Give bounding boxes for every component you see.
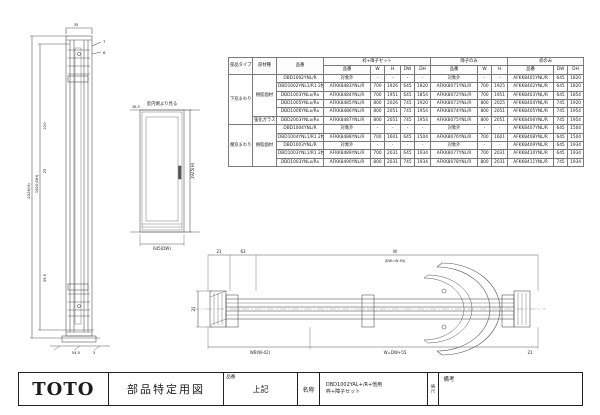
table-cell: AFKK8486YNL/R [324,108,371,116]
dim-label: W [393,249,397,254]
table-cell: AFKK8403YNL/R [508,91,554,99]
table-row: DBD1004YNL1/R1 2枚AFKK8488YNL/R7001601645… [229,133,584,141]
scale-cell: 縮尺 [428,373,440,405]
table-cell: - [415,125,431,133]
table-row: DBD1003YNL/R対象外----対象外--AFKK8409YNL/R645… [229,142,584,150]
dim-label: 1820(DH) [34,174,39,193]
table-cell: 樹脂面材 [253,74,277,116]
table-cell: 1951 [492,91,508,99]
table-row: 下窓まわり樹脂面材DBD1002YNL/R対象外----対象外--AFKK840… [229,74,584,82]
table-cell: 1954 [415,108,431,116]
table-cell: AFKK8073YNL/R [431,100,478,108]
table-cell: 800 [371,100,385,108]
subheader: DW [401,66,415,74]
biko-label: 備考 [443,375,454,383]
table-cell: 645 [554,150,568,158]
table-cell: 700 [371,133,385,141]
table-cell: AFKK8411YNL/R [508,158,554,166]
horizontal-section-drawing: 21 63 W (DW=W-55) WB(W-42) W=DW+55 21 21 [190,245,550,370]
table-cell: 1820 [568,74,584,82]
table-cell: AFKK8485YNL/R [324,100,371,108]
table-cell: 1934 [568,142,584,150]
table-cell: DBD1006YNLx/Rx [277,108,324,116]
table-cell: AFKK8401YNL/R [508,74,554,82]
table-cell: AFKK8408YNL/R [508,133,554,141]
table-cell: 1925 [492,83,508,91]
table-row: 強化ガラスDBD2003YNLx/RxAFKK8487YNL/R80020517… [229,116,584,124]
dim-label: 21 [216,249,222,254]
table-cell: 1934 [568,150,584,158]
table-cell: 対象外 [324,74,371,82]
toto-logo: TOTO [19,373,109,405]
table-cell: 1954 [568,116,584,124]
table-cell: 1504 [415,133,431,141]
table-cell: 800 [371,158,385,166]
table-cell: 対象外 [431,125,478,133]
dim-label: 25 [42,168,47,173]
table-cell: 645 [554,133,568,141]
table-cell: 745 [554,158,568,166]
dim-label: WB(W-42) [250,350,271,355]
table-cell: AFKK8484YNL/R [324,91,371,99]
table-cell: 1954 [568,108,584,116]
table-cell: AFKK8075YNL/R [431,116,478,124]
dim-label: (DW=W-55) [385,259,406,263]
table-cell: 1601 [385,133,401,141]
table-header-row: 部品タイプ 部材種 品番 枠+障子セット 障子のみ 枠のみ [229,58,584,66]
table-cell: 700 [371,91,385,99]
table-cell: AFKK8074YNL/R [431,108,478,116]
table-cell: 745 [401,116,415,124]
table-cell: - [492,125,508,133]
dim-label: 35 [74,22,79,27]
table-cell: 1926 [385,83,401,91]
table-cell: 2051 [385,116,401,124]
table-cell: 対象外 [324,125,371,133]
table-cell: 700 [478,150,492,158]
subheader: 品番 [431,66,478,74]
table-cell: - [401,142,415,150]
table-cell: 800 [478,100,492,108]
table-cell: AFKK8490YNL/R [324,158,371,166]
table-cell: 745 [554,116,568,124]
table-cell: 700 [478,133,492,141]
dim-label: 2026(H) [26,183,31,199]
table-cell: 対象外 [431,142,478,150]
table-cell: 800 [478,116,492,124]
table-cell: 1601 [492,133,508,141]
table-cell: AFKK8071YNL/R [431,83,478,91]
table-cell: 2051 [492,116,508,124]
table-cell: 2025 [492,100,508,108]
table-cell: - [492,142,508,150]
table-row: 腰窓まわり樹脂面材DBD1004YNL/R対象外----対象外--AFKK840… [229,125,584,133]
table-cell: 1954 [415,116,431,124]
document-type-title: 部品特定用図 [109,373,225,405]
table-cell: 対象外 [431,74,478,82]
table-cell: AFKK8405YNL/R [508,108,554,116]
meisho-value: DBD1002YAL+/R+他用 枠+障子セット [320,373,428,405]
table-cell: AFKK8489YNL/R [324,150,371,158]
table-cell: - [371,142,385,150]
subheader: 品番 [324,66,371,74]
table-cell: 腰窓まわり [229,125,253,167]
table-cell: - [401,125,415,133]
drawing-sheet: 35 7 8 220 25 39.5 54.5 3 2026(H) 1820(D… [0,0,600,415]
table-cell: 1504 [568,133,584,141]
dim-label: 54.5 [72,350,81,355]
table-cell: 700 [478,91,492,99]
dim-label: W=DW+55 [384,350,407,355]
table-cell: 800 [371,108,385,116]
table-cell: 強化ガラス [253,116,277,124]
table-cell: 下窓まわり [229,74,253,124]
subheader: H [492,66,508,74]
table-cell: 2031 [492,150,508,158]
spec-table-body: 下窓まわり樹脂面材DBD1002YNL/R対象外----対象外--AFKK840… [229,74,584,166]
table-cell: - [385,74,401,82]
table-cell: - [478,74,492,82]
table-cell: 645 [554,91,568,99]
table-cell: AFKK8407YNL/R [508,125,554,133]
subheader: H [385,66,401,74]
dim-label: 645(DW) [153,246,171,251]
dim-label: 38.5 [132,105,140,109]
table-cell: 1854 [415,91,431,99]
subheader: DH [568,66,584,74]
subheader: W [478,66,492,74]
table-row: DBD1002YNL1/R1 2枚AFKK8483YNL/R7001926645… [229,83,584,91]
table-row: DBD1003YNLx/RxAFKK8484YNL/R7001951645185… [229,91,584,99]
dim-label: 21 [527,350,533,355]
table-cell: AFKK8076YNL/R [431,133,478,141]
table-cell: - [415,74,431,82]
subheader: DW [554,66,568,74]
table-row: DBD1003YNLx/RxAFKK8490YNL/R8002031745193… [229,158,584,166]
table-cell: 745 [401,100,415,108]
table-cell: - [415,142,431,150]
table-cell: 645 [554,125,568,133]
table-cell: 745 [554,100,568,108]
table-cell: 745 [401,158,415,166]
table-cell: AFKK8409YNL/R [508,142,554,150]
col-header-hinban: 品番 [277,58,324,75]
dim-label: 220 [42,122,47,130]
table-cell: - [478,125,492,133]
group-header-frame: 枠のみ [508,58,584,66]
table-cell: DBD1004YNL1/R1 2枚 [277,133,324,141]
table-cell: 2026 [385,100,401,108]
meisho-label: 名称 [298,373,320,405]
table-cell: 1504 [568,125,584,133]
drawing-caption: 室内側より見る [147,100,178,107]
dim-label: 39.5 [42,273,47,282]
dim-label: 63 [240,249,246,254]
table-cell: - [385,125,401,133]
table-cell: 2051 [385,108,401,116]
dim-label: 21 [191,306,196,312]
table-cell: 1934 [415,150,431,158]
dim-label: 3 [93,350,96,355]
spec-table: 部品タイプ 部材種 品番 枠+障子セット 障子のみ 枠のみ 品番 W H DW … [228,57,584,167]
table-cell: AFKK8078YNL/R [431,158,478,166]
table-cell: 700 [478,83,492,91]
table-cell: 645 [554,142,568,150]
table-cell: 645 [401,150,415,158]
table-cell: 800 [478,108,492,116]
table-cell: 1820 [415,83,431,91]
dim-label: 1925(H) [190,162,195,179]
table-cell: 1854 [568,91,584,99]
table-cell: DBD1003YNLx/Rx [277,158,324,166]
table-cell: AFKK8072YNL/R [431,91,478,99]
table-cell: 1920 [568,100,584,108]
table-cell: 2051 [492,108,508,116]
col-header-material: 部材種 [253,58,277,75]
table-cell: - [401,74,415,82]
table-cell: DBD1002YNL/R [277,74,324,82]
table-cell: 745 [554,108,568,116]
vertical-section-drawing: 35 7 8 220 25 39.5 54.5 3 2026(H) 1820(D… [22,16,127,356]
table-row: DBD1006YNLx/RxAFKK8486YNL/R8002051745195… [229,108,584,116]
table-cell: 樹脂面材 [253,125,277,167]
table-cell: - [478,142,492,150]
table-cell: AFKK8488YNL/R [324,133,371,141]
meisho-line1: DBD1002YAL+/R+他用 [326,382,382,389]
table-cell: DBD1003YNL/R [277,142,324,150]
table-cell: 1951 [385,91,401,99]
table-cell: DBD1004YNL/R [277,125,324,133]
table-cell: 1934 [568,158,584,166]
table-cell: 1934 [415,158,431,166]
group-header-set: 枠+障子セット [324,58,431,66]
table-cell: - [385,142,401,150]
scale-label: 縮尺 [430,384,436,394]
subheader: 品番 [508,66,554,74]
table-cell: 700 [371,150,385,158]
elevation-drawing: 室内側より見る 38.5 1925(H) 645(DW) [130,98,208,253]
table-row: DBD1003YNL1/R1 2枚AFKK8489YNL/R7002031645… [229,150,584,158]
table-cell: DBD1002YNL1/R1 2枚 [277,83,324,91]
hinban-cell: 品番 上記 [224,373,298,405]
table-cell: - [371,125,385,133]
table-cell: 対象外 [324,142,371,150]
table-cell: AFKK8404YNL/R [508,100,554,108]
table-cell: AFKK8077YNL/R [431,150,478,158]
biko-cell: 備考 [439,373,582,405]
table-cell: DBD1003YNLx/Rx [277,91,324,99]
hinban-label: 品番 [226,374,235,380]
table-cell: AFKK8402YNL/R [508,83,554,91]
table-cell: 745 [401,108,415,116]
title-block: TOTO 部品特定用図 品番 上記 名称 DBD1002YAL+/R+他用 枠+… [18,372,583,406]
table-cell: 700 [371,83,385,91]
group-header-sash: 障子のみ [431,58,508,66]
table-cell: DBD1005YNLx/Rx [277,100,324,108]
table-cell: 2031 [385,158,401,166]
table-cell: 645 [401,91,415,99]
table-cell: 645 [401,133,415,141]
table-cell: AFKK8483YNL/R [324,83,371,91]
table-cell: AFKK8487YNL/R [324,116,371,124]
subheader: DH [415,66,431,74]
table-row: DBD1005YNLx/RxAFKK8485YNL/R8002026745192… [229,100,584,108]
table-cell: 800 [371,116,385,124]
table-cell: - [371,74,385,82]
table-cell: 2031 [385,150,401,158]
dim-label: 7 [103,39,106,44]
table-cell: 1820 [568,83,584,91]
table-cell: 645 [401,83,415,91]
table-cell: 645 [554,83,568,91]
meisho-line2: 枠+障子セット [326,389,360,396]
subheader: W [371,66,385,74]
table-cell: AFKK8406YNL/R [508,116,554,124]
hinban-value: 上記 [253,384,269,395]
dim-label: 8 [103,50,106,55]
table-cell: 2031 [492,158,508,166]
table-cell: - [492,74,508,82]
table-cell: 800 [478,158,492,166]
table-cell: 645 [554,74,568,82]
table-cell: DBD2003YNLx/Rx [277,116,324,124]
table-cell: 1920 [415,100,431,108]
col-header-part-type: 部品タイプ [229,58,253,75]
table-cell: DBD1003YNL1/R1 2枚 [277,150,324,158]
table-cell: AFKK8410YNL/R [508,150,554,158]
